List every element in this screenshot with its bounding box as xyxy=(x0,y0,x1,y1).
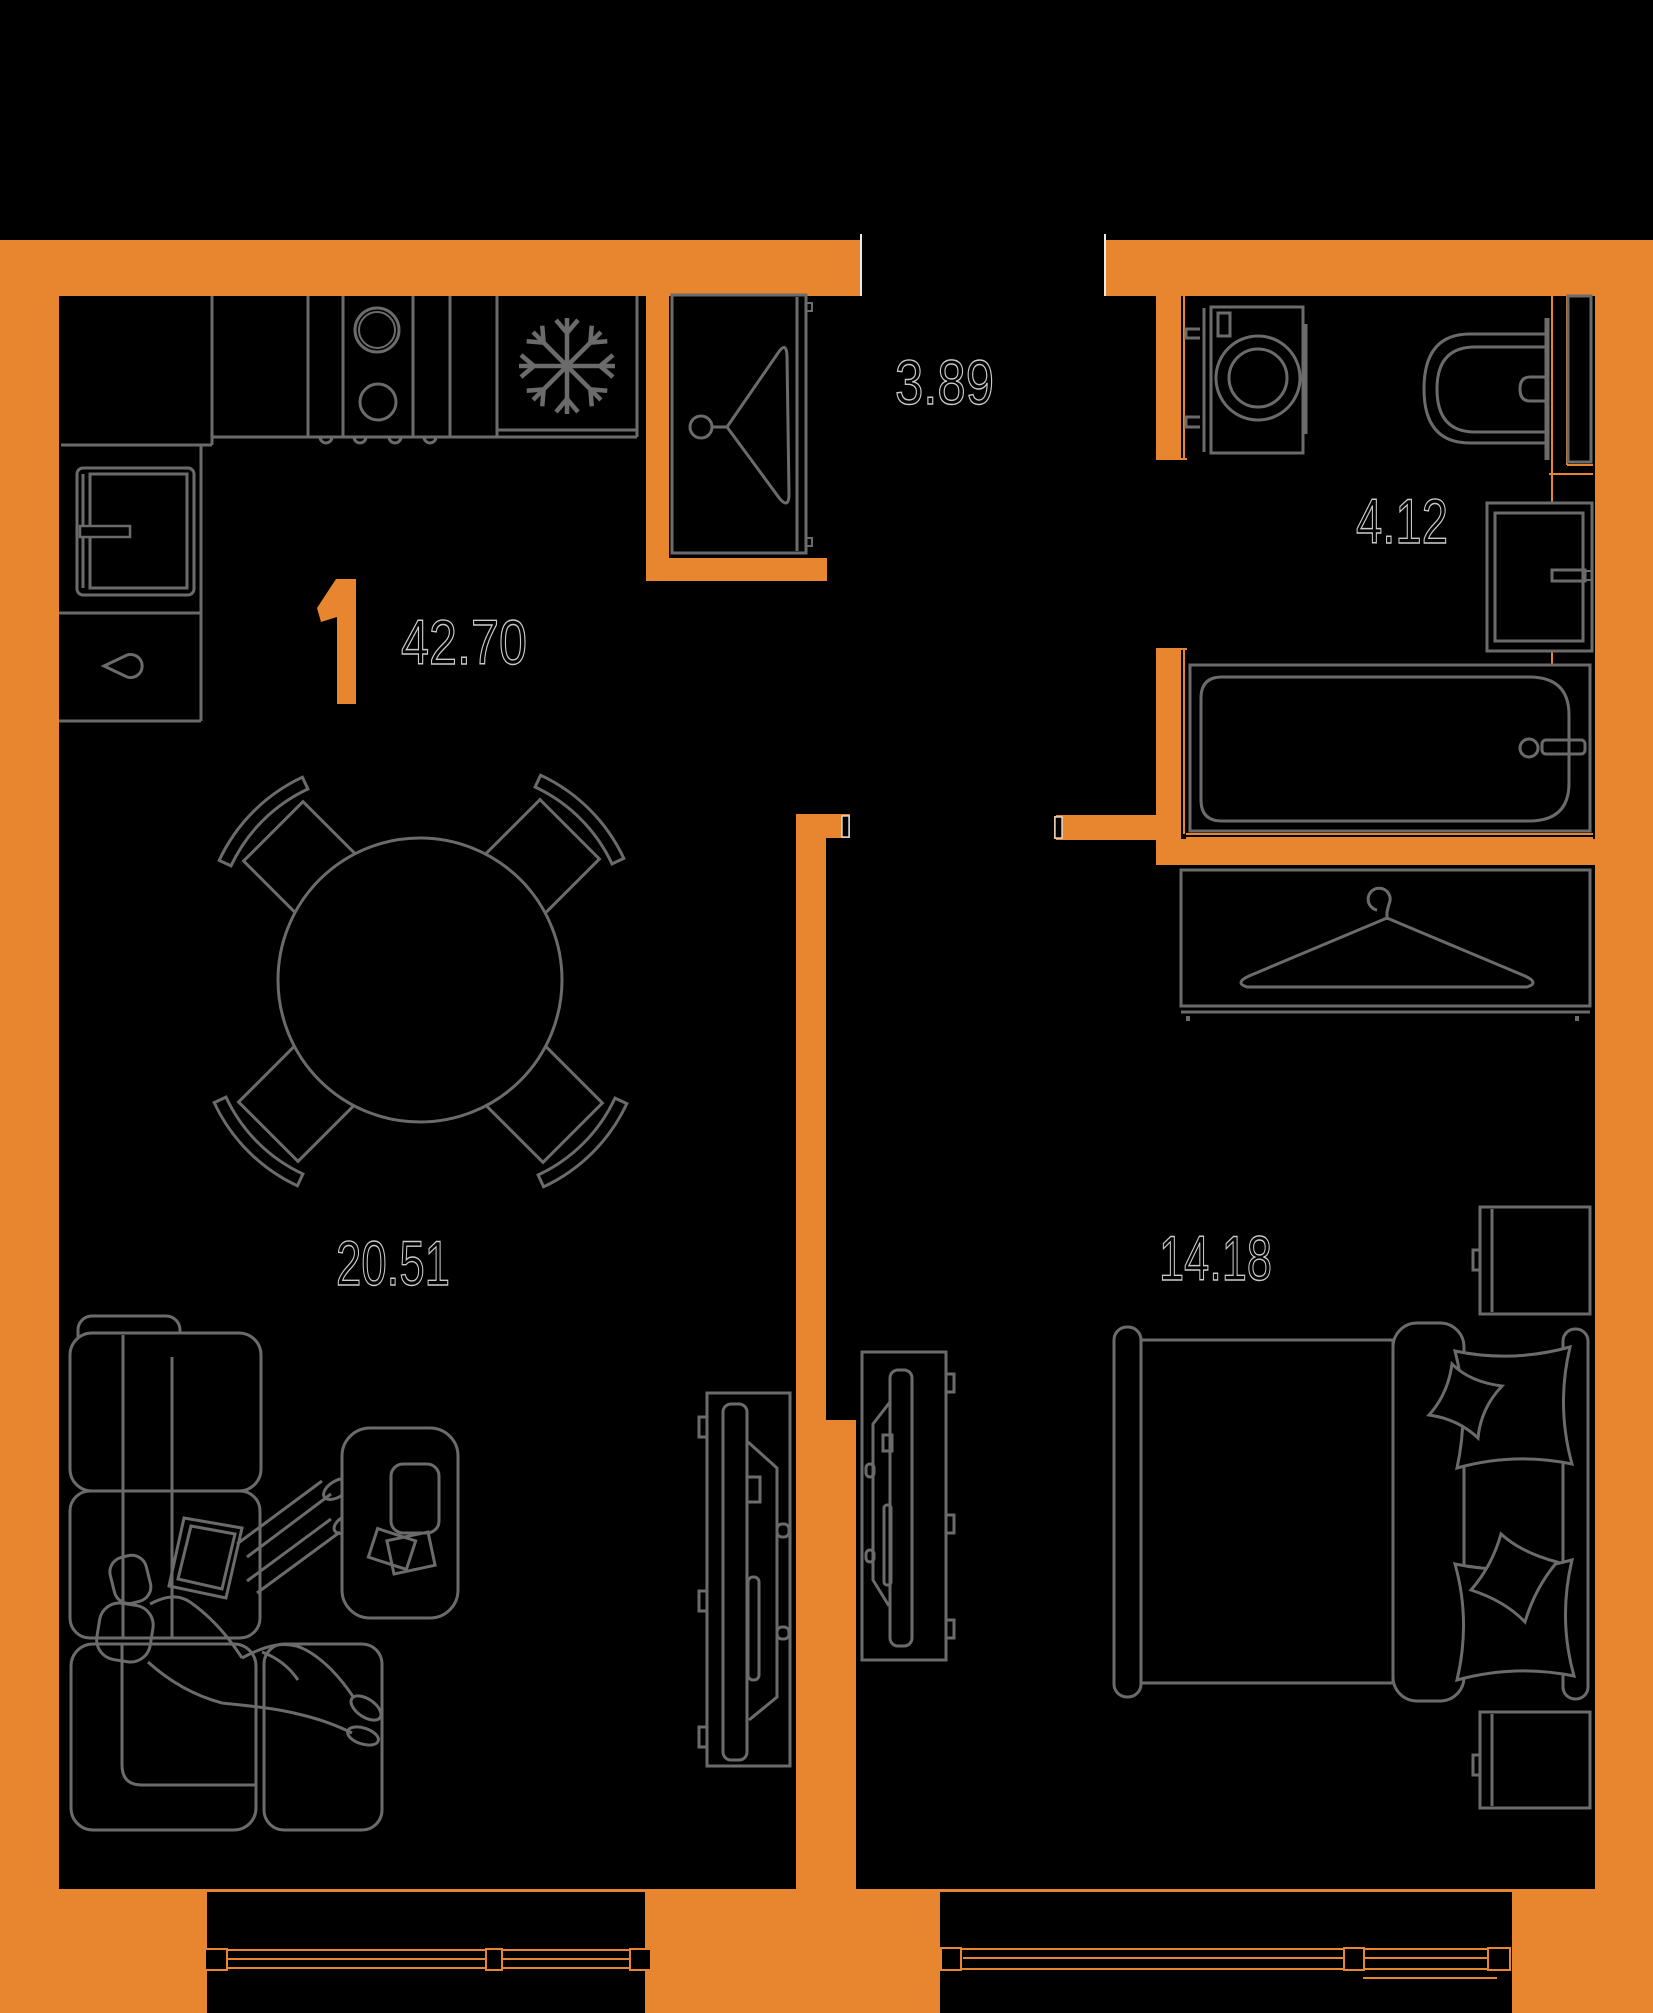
svg-text:4.12: 4.12 xyxy=(1356,487,1448,557)
svg-text:14.18: 14.18 xyxy=(1159,1224,1272,1294)
svg-text:3.89: 3.89 xyxy=(895,348,994,418)
svg-text:20.51: 20.51 xyxy=(336,1229,450,1299)
svg-text:42.70: 42.70 xyxy=(401,608,527,678)
